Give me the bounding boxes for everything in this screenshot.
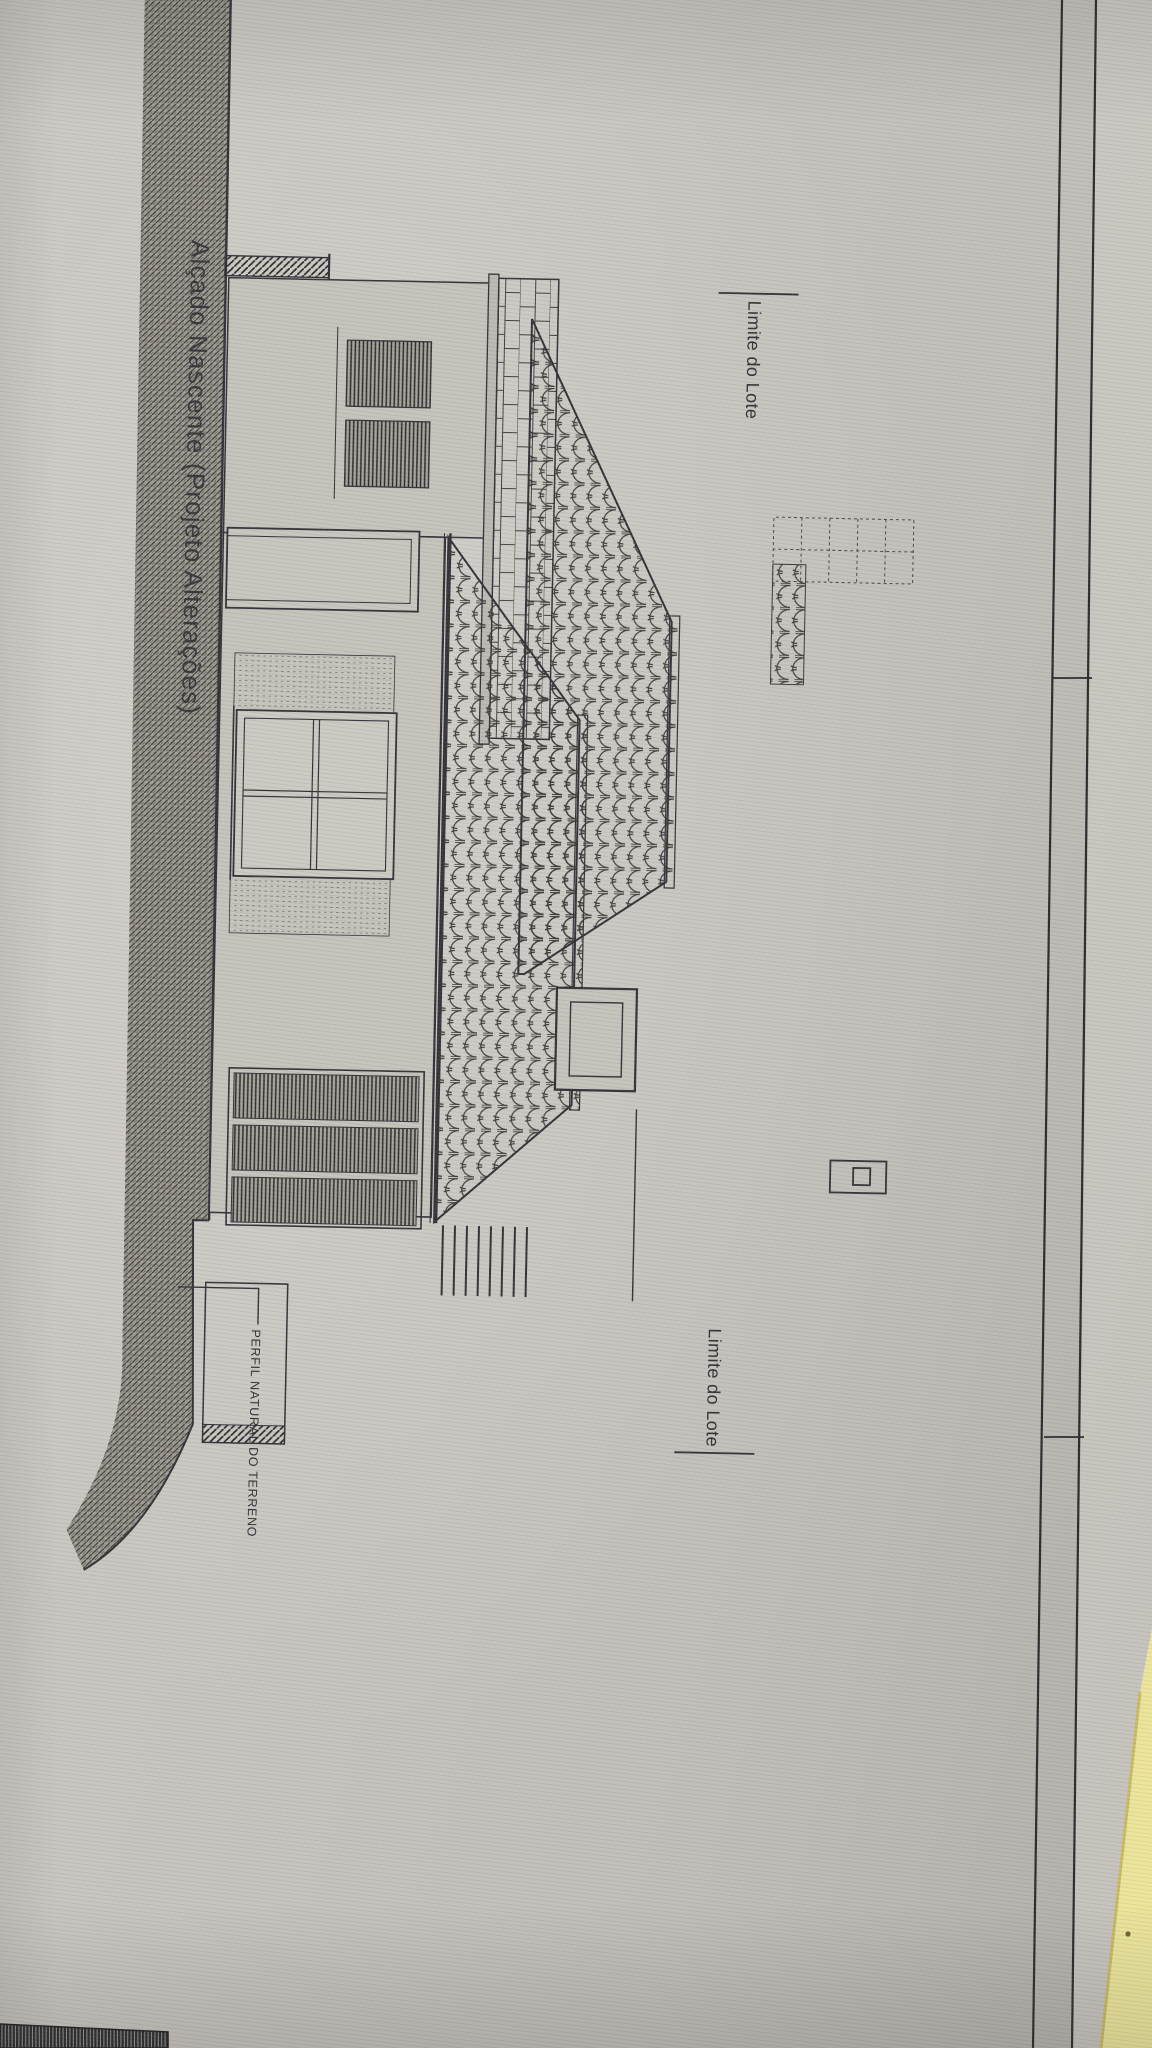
elevation-drawing: Alçado Nascente (Projeto Alterações) Lim… [66, 0, 925, 1587]
boundary-wall-left-cap [329, 254, 330, 282]
garage-louver-2 [232, 1125, 418, 1174]
garage-louver-3 [231, 1177, 417, 1226]
lot-limit-line-top [719, 293, 799, 295]
fragment-flue-square [853, 1168, 870, 1185]
drawing-sheet: Alçado Nascente (Projeto Alterações) Lim… [0, 0, 1152, 2048]
lot-limit-label-top: Limite do Lote [742, 300, 764, 419]
sheet-border-line-inner [1033, 0, 1062, 2048]
lot-limit-line-bottom [674, 1452, 754, 1454]
ridge-comb [442, 1225, 527, 1297]
fragment-flue-box [830, 1160, 887, 1193]
underlying-drawing-strip [0, 2024, 168, 2048]
house-elevation [208, 269, 687, 1302]
terrain-profile-label: PERFIL NATURAL DO TERRENO [244, 1329, 262, 1537]
sticky-note-speck [1125, 1931, 1130, 1936]
door [226, 528, 420, 612]
boundary-wall-left-section [225, 256, 329, 278]
roof-edge-line-right [632, 1109, 636, 1301]
garage-louver-1 [233, 1073, 419, 1122]
upper-drawing-fragment [760, 517, 914, 1194]
shutter-louvers-left-1 [346, 340, 431, 408]
facade-left-wing [223, 278, 498, 539]
terrain-hatch-lines [66, 0, 235, 1572]
shutter-louvers-left-2 [344, 420, 429, 488]
boundary-wall-right-box [202, 1282, 287, 1444]
roof-upper-tiles [518, 319, 678, 977]
photo-of-architectural-drawing: Alçado Nascente (Projeto Alterações) Lim… [0, 0, 1152, 2048]
lot-limit-label-bottom: Limite do Lote [702, 1328, 724, 1447]
fragment-roof-tiles [770, 564, 806, 685]
skylight-box [555, 988, 637, 1092]
window-frame [233, 710, 396, 879]
boundary-wall-right-section [202, 1424, 284, 1444]
